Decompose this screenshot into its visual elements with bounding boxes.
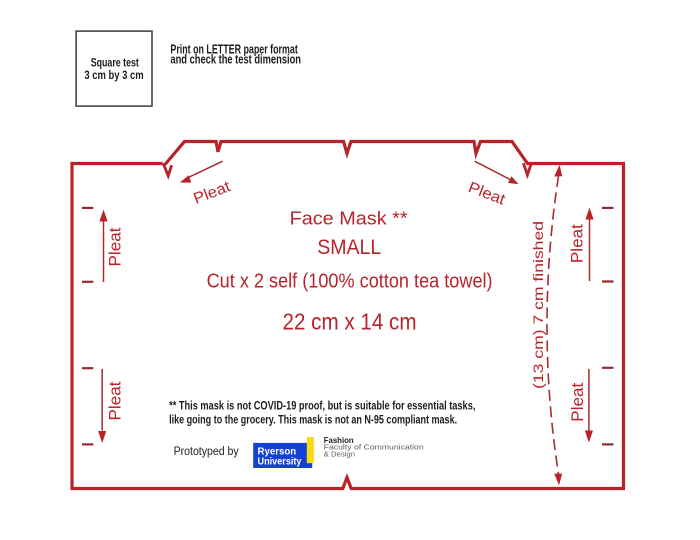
svg-text:Face Mask **: Face Mask ** [290, 207, 408, 228]
svg-text:Prototyped by: Prototyped by [174, 446, 239, 458]
svg-text:3 cm by 3 cm: 3 cm by 3 cm [84, 70, 143, 82]
svg-text:Pleat: Pleat [107, 227, 125, 266]
svg-text:University: University [258, 455, 302, 467]
svg-text:and check the test dimension: and check the test dimension [170, 52, 301, 67]
svg-text:like going to the grocery. Thi: like going to the grocery. This mask is … [169, 412, 457, 426]
svg-text:** This mask is not COVID-19 p: ** This mask is not COVID-19 proof, but … [169, 399, 475, 413]
svg-text:Pleat: Pleat [569, 224, 587, 263]
svg-text:& Design: & Design [324, 450, 355, 459]
svg-text:SMALL: SMALL [317, 235, 381, 259]
svg-text:Square test: Square test [91, 58, 139, 70]
svg-text:Pleat: Pleat [569, 382, 587, 421]
svg-text:22 cm x 14 cm: 22 cm x 14 cm [283, 309, 417, 335]
svg-text:Cut x 2 self (100% cotton tea: Cut x 2 self (100% cotton tea towel) [207, 270, 493, 292]
svg-text:Pleat: Pleat [107, 381, 125, 420]
svg-text:(13 cm) 7 cm finished: (13 cm) 7 cm finished [530, 221, 546, 389]
